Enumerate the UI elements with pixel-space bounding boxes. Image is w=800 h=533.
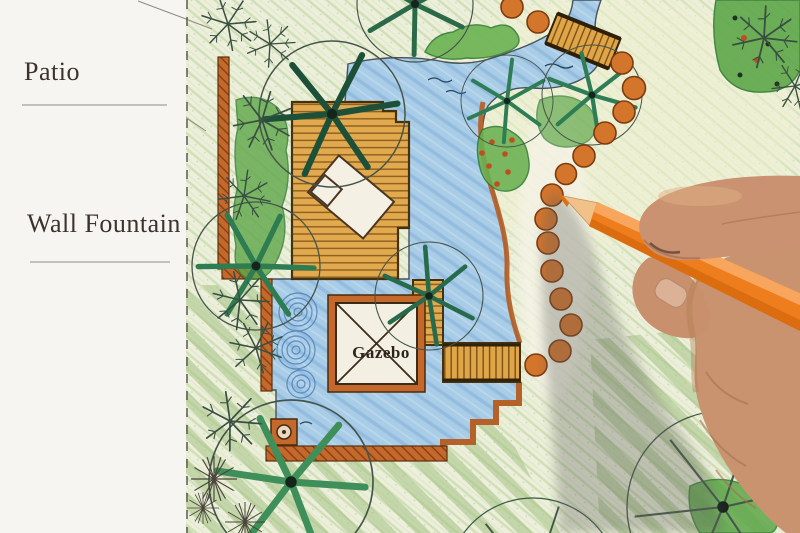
patio-deck [292,102,409,279]
boardwalk-horizontal [443,343,520,382]
label-margin [0,0,186,533]
plan-drawing [0,0,800,533]
photo-of-landscape-plan: Patio Wall Fountain Gazebo [0,0,800,533]
corner-fountain-feature [271,419,297,445]
